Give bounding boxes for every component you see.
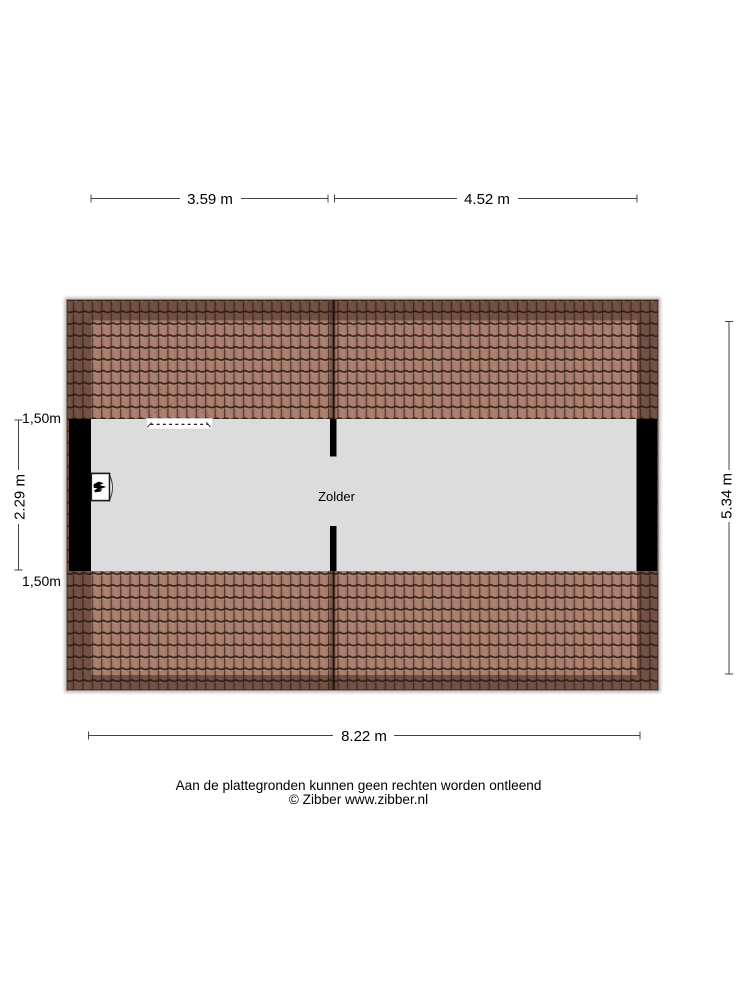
svg-text:1,50m: 1,50m	[22, 410, 61, 426]
svg-text:Aan de plattegronden kunnen ge: Aan de plattegronden kunnen geen rechten…	[176, 778, 542, 793]
svg-text:2.29 m: 2.29 m	[12, 474, 29, 520]
svg-text:8.22 m: 8.22 m	[341, 728, 387, 745]
svg-text:© Zibber www.zibber.nl: © Zibber www.zibber.nl	[289, 792, 428, 807]
svg-text:4.52 m: 4.52 m	[464, 191, 510, 208]
svg-text:5.34 m: 5.34 m	[719, 473, 736, 519]
svg-text:1,50m: 1,50m	[22, 573, 61, 589]
svg-text:3.59 m: 3.59 m	[187, 191, 233, 208]
svg-text:Zolder: Zolder	[318, 489, 356, 504]
